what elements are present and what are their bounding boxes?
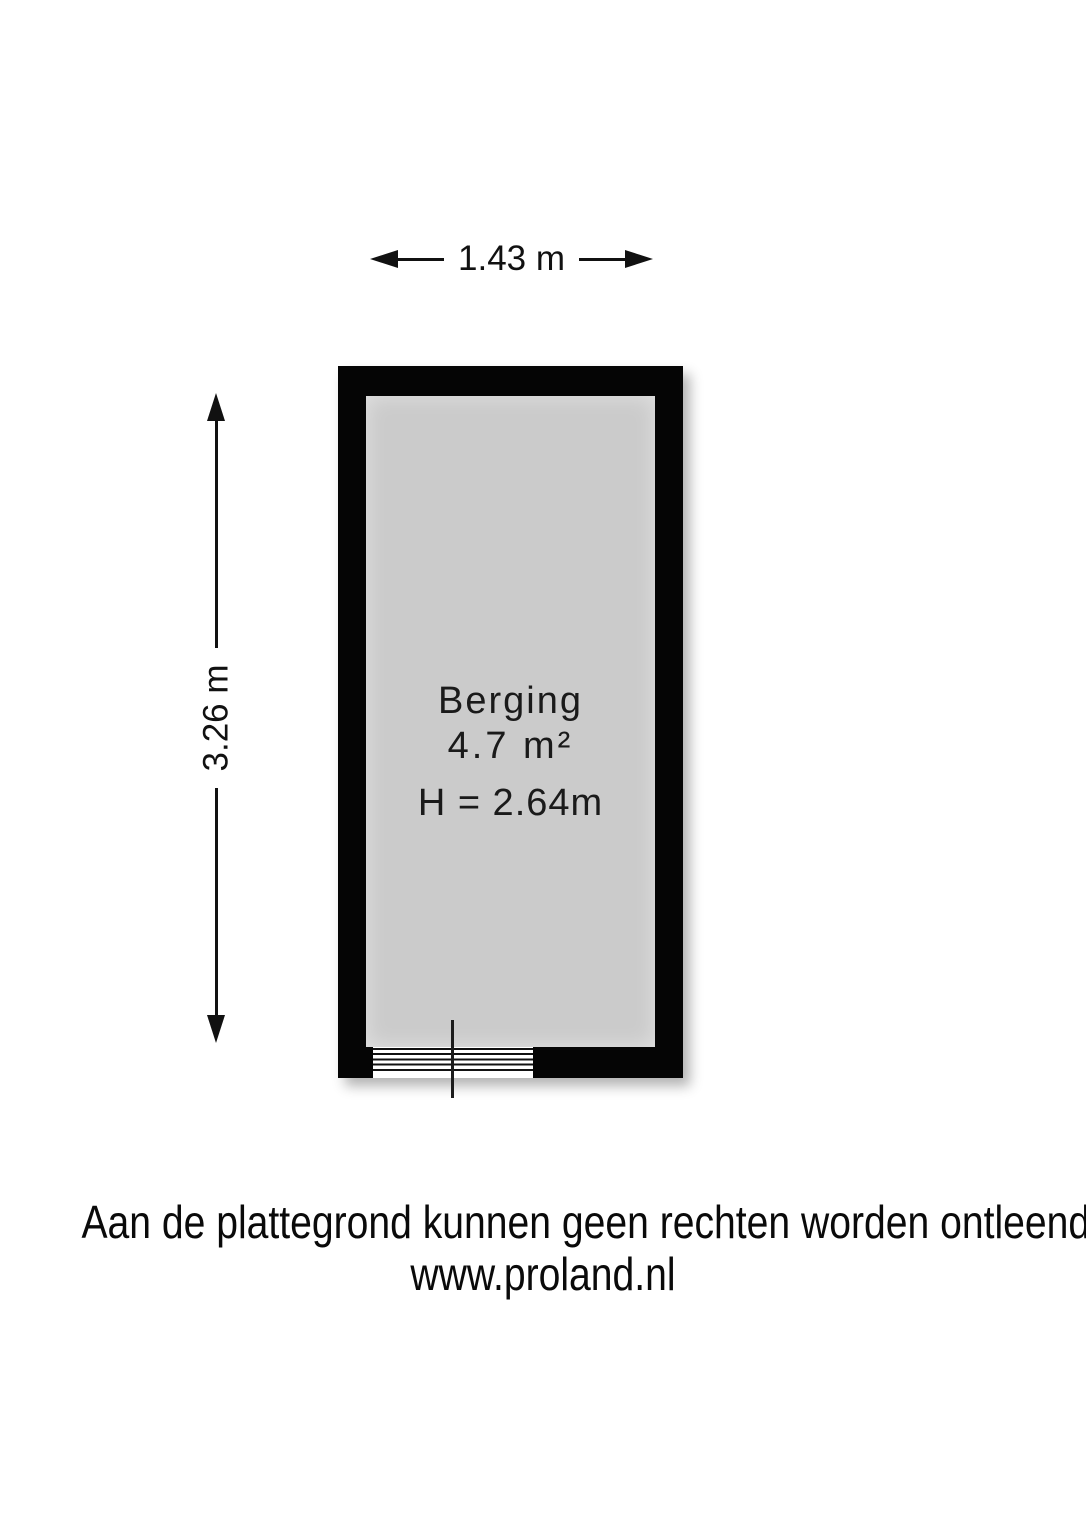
height-dimension: 3.26 m [200, 393, 232, 1043]
dimension-line [215, 421, 218, 648]
disclaimer-text: Aan de plattegrond kunnen geen rechten w… [81, 1196, 1004, 1248]
height-dimension-label: 3.26 m [196, 665, 236, 772]
arrow-down-icon [207, 1015, 225, 1043]
room-ceiling-height: H = 2.64m [366, 780, 655, 826]
height-dimension-label-wrap: 3.26 m [200, 648, 232, 788]
dimension-line [579, 258, 625, 261]
storage-room-plan: Berging 4.7 m² H = 2.64m [338, 366, 683, 1078]
room-area: 4.7 m² [366, 724, 655, 768]
room-name: Berging [366, 678, 655, 724]
door-axis-line [451, 1020, 454, 1098]
footer: Aan de plattegrond kunnen geen rechten w… [0, 1196, 1086, 1300]
arrow-up-icon [207, 393, 225, 421]
dimension-line [398, 258, 444, 261]
width-dimension: 1.43 m [370, 240, 653, 278]
width-dimension-label: 1.43 m [444, 240, 579, 278]
floorplan-page: 1.43 m 3.26 m Berging 4.7 m² H = 2.64m A… [0, 0, 1086, 1536]
arrow-left-icon [370, 250, 398, 268]
website-text: www.proland.nl [81, 1248, 1004, 1300]
dimension-line [215, 788, 218, 1015]
room-labels: Berging 4.7 m² H = 2.64m [366, 678, 655, 826]
arrow-right-icon [625, 250, 653, 268]
